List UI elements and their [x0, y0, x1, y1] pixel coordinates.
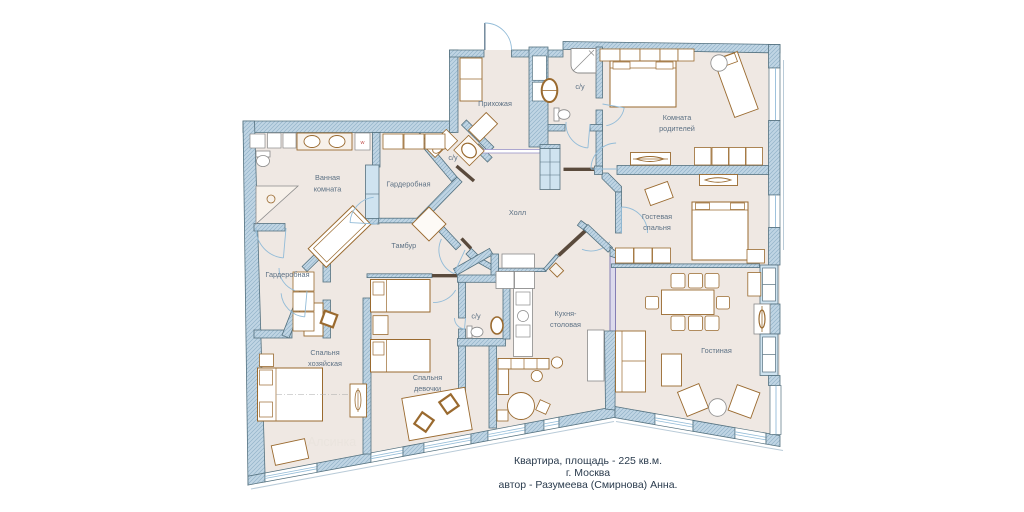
svg-text:хозяйская: хозяйская — [308, 359, 342, 368]
svg-text:Холл: Холл — [509, 208, 526, 217]
svg-text:Гардеробная: Гардеробная — [265, 270, 309, 279]
svg-text:Спальня: Спальня — [413, 373, 442, 382]
svg-text:с/у: с/у — [448, 153, 458, 162]
svg-text:Гостиная: Гостиная — [701, 346, 732, 355]
svg-text:комната: комната — [314, 185, 343, 194]
svg-text:Алсинка: Алсинка — [308, 435, 357, 449]
svg-text:с/у: с/у — [471, 312, 481, 321]
svg-text:Квартира, площадь - 225 кв.м.: Квартира, площадь - 225 кв.м. — [514, 455, 662, 467]
svg-text:Прихожая: Прихожая — [478, 99, 512, 108]
svg-text:Спальня: Спальня — [310, 348, 339, 357]
svg-text:родителей: родителей — [659, 124, 695, 133]
svg-text:девочки: девочки — [414, 384, 441, 393]
svg-text:Комната: Комната — [663, 113, 693, 122]
svg-text:с/у: с/у — [575, 82, 585, 91]
svg-text:спальня: спальня — [643, 223, 671, 232]
svg-text:Кухня-: Кухня- — [555, 309, 578, 318]
svg-text:автор - Разумеева (Смирнова) А: автор - Разумеева (Смирнова) Анна. — [499, 479, 678, 491]
svg-text:Гостевая: Гостевая — [642, 212, 672, 221]
svg-text:Гардеробная: Гардеробная — [386, 180, 430, 189]
svg-text:w: w — [360, 140, 365, 146]
svg-text:столовая: столовая — [550, 320, 581, 329]
svg-text:Ванная: Ванная — [315, 173, 340, 182]
svg-text:г. Москва: г. Москва — [566, 467, 610, 479]
svg-text:Тамбур: Тамбур — [391, 241, 416, 250]
